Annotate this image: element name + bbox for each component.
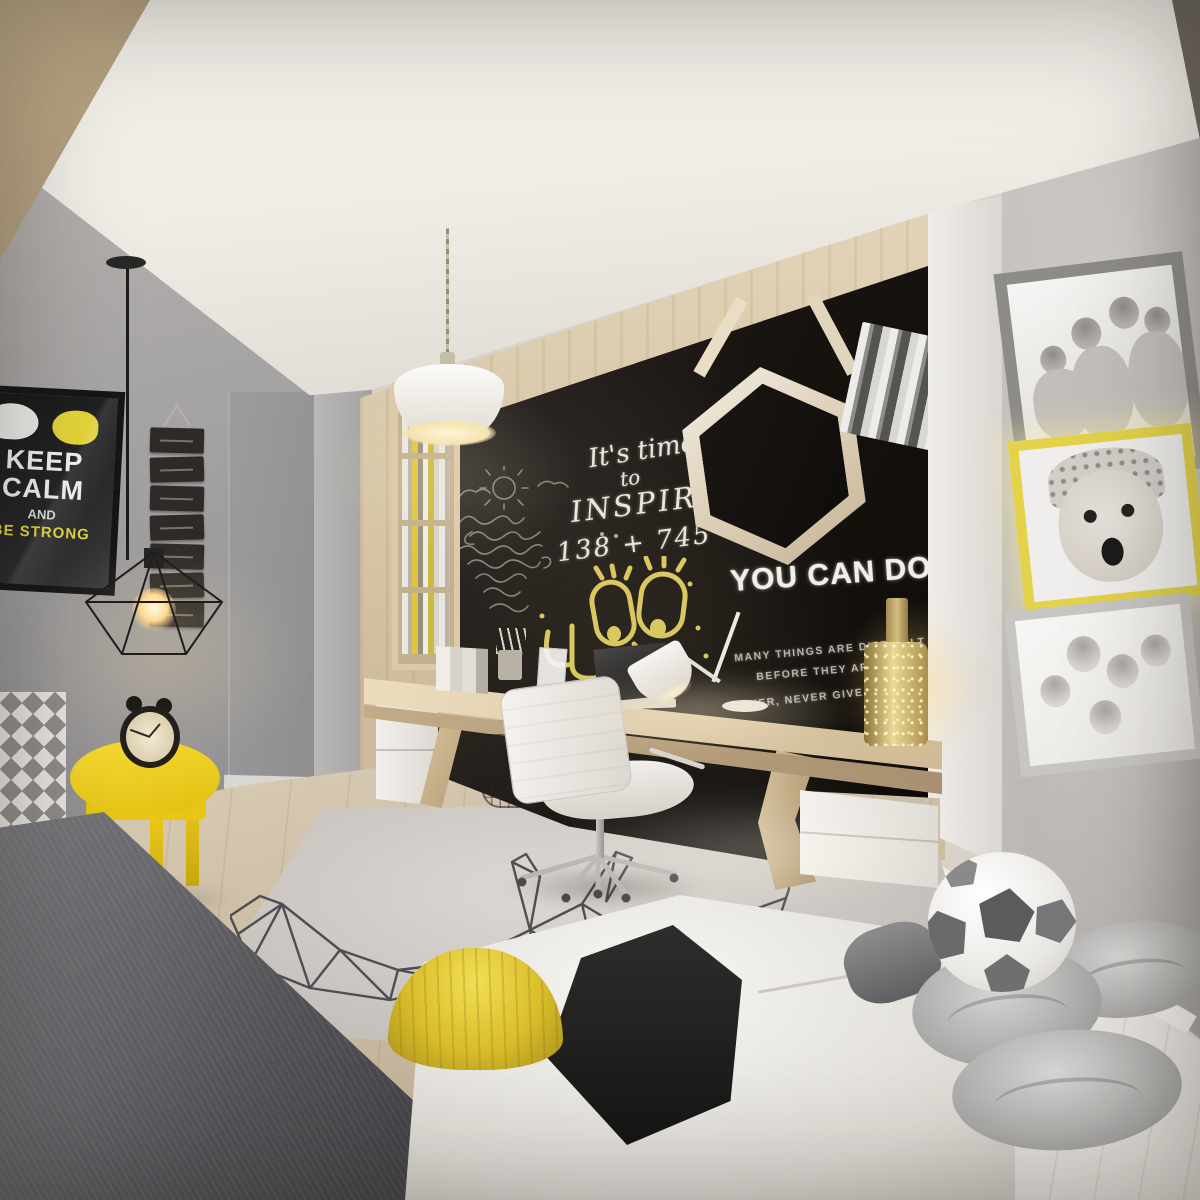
desk-books xyxy=(436,644,488,694)
pencil-cup xyxy=(498,650,522,680)
baby-photo-frame xyxy=(1008,423,1200,613)
alarm-clock xyxy=(120,706,180,768)
pendant-lamp-canopy xyxy=(430,214,464,228)
bookshelf-row xyxy=(402,593,450,654)
cage-lamp-canopy xyxy=(106,256,146,269)
soccer-ball-plush xyxy=(928,852,1076,992)
kids-room-render: It's time to INSPIRE 138 + 745 = 88 YOU … xyxy=(0,0,1200,1200)
photo-figure xyxy=(1124,328,1193,430)
photo-figure xyxy=(1139,633,1172,668)
ball-pentagon xyxy=(975,884,1038,943)
photo-figure xyxy=(1039,674,1072,709)
chalk-card xyxy=(150,456,205,482)
desk-lamp-base xyxy=(722,700,768,712)
bookshelf-row xyxy=(402,459,450,520)
photo-figure xyxy=(1065,634,1103,673)
wall-jamb xyxy=(314,380,368,800)
soccer-bed-black-patch xyxy=(535,925,765,1145)
bookshelf-row xyxy=(402,526,450,587)
pendant-lamp-cord xyxy=(446,224,449,364)
pendant-lamp-shade xyxy=(394,364,504,444)
door xyxy=(228,392,314,784)
ball-pentagon xyxy=(1028,892,1076,946)
photo-figure xyxy=(1088,699,1123,736)
group-photo-frame xyxy=(1004,593,1200,778)
chair-backrest xyxy=(499,674,634,806)
bottle-lamp xyxy=(864,642,928,746)
chalk-card xyxy=(150,485,205,511)
photo-figure xyxy=(1107,295,1141,330)
ball-pentagon xyxy=(928,905,973,964)
cage-lamp-cord xyxy=(126,264,129,560)
ball-pentagon xyxy=(940,852,980,888)
photo-figure xyxy=(1105,653,1140,690)
ball-pentagon xyxy=(984,954,1030,992)
chalk-card xyxy=(150,514,205,540)
chalk-card xyxy=(150,427,205,453)
organizer-hook xyxy=(175,403,190,426)
wire-cage-lamp xyxy=(74,548,234,660)
